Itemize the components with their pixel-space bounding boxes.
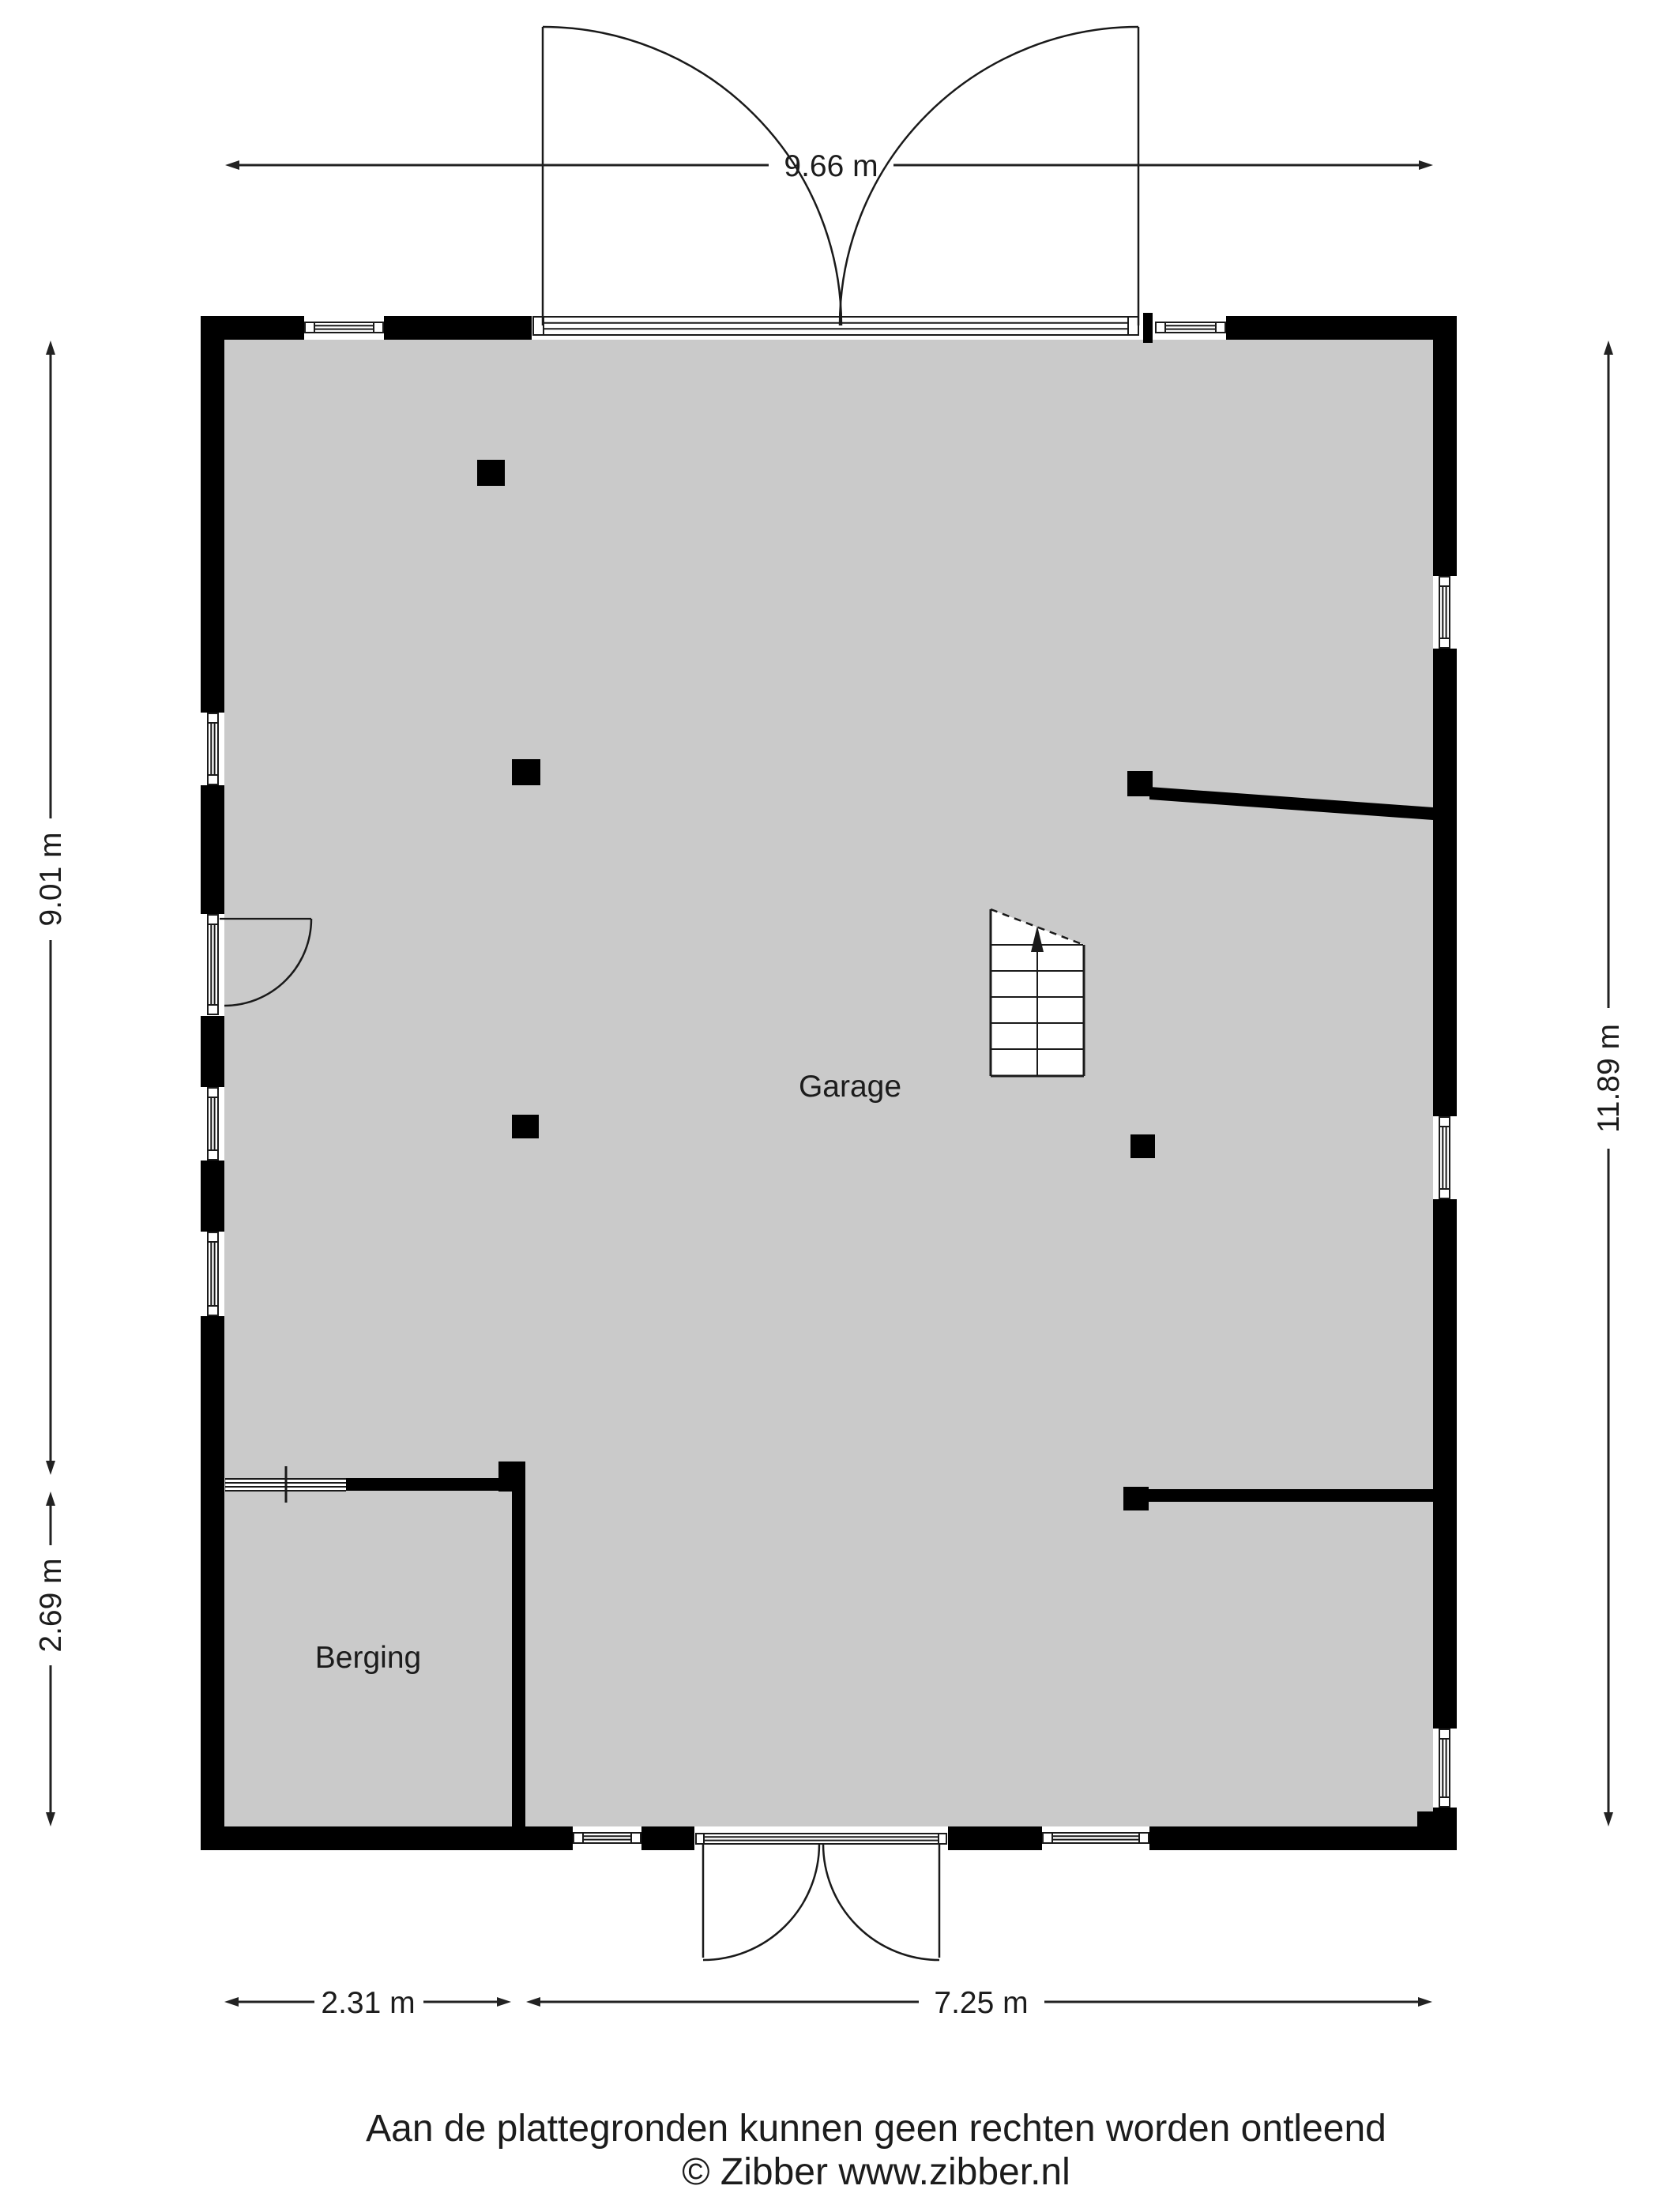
svg-text:Garage: Garage xyxy=(799,1070,901,1104)
svg-text:9.66 m: 9.66 m xyxy=(784,149,878,183)
svg-text:11.89 m: 11.89 m xyxy=(1592,1024,1626,1133)
svg-text:2.31 m: 2.31 m xyxy=(321,1986,415,2020)
svg-text:7.25 m: 7.25 m xyxy=(934,1986,1028,2020)
svg-text:© Zibber www.zibber.nl: © Zibber www.zibber.nl xyxy=(682,2151,1070,2193)
svg-text:2.69 m: 2.69 m xyxy=(34,1558,68,1652)
svg-text:Berging: Berging xyxy=(315,1641,421,1675)
svg-text:9.01 m: 9.01 m xyxy=(34,832,68,926)
svg-text:Aan de plattegronden kunnen ge: Aan de plattegronden kunnen geen rechten… xyxy=(366,2108,1386,2150)
